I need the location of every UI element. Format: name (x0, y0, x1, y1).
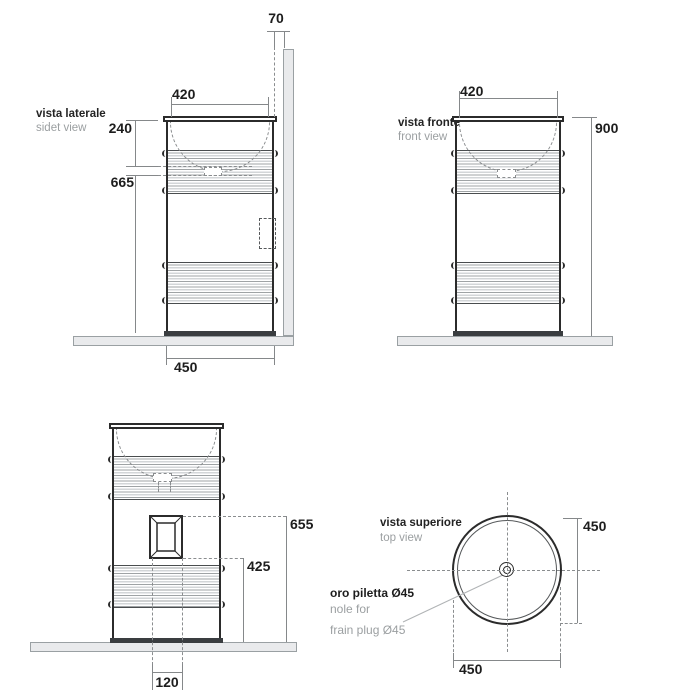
dim-tick (268, 97, 269, 117)
rolling-hoop (162, 187, 278, 194)
dim-line (135, 120, 136, 166)
dim-line (171, 104, 268, 105)
dim-tick (560, 653, 561, 668)
access-opening-frame (149, 515, 183, 559)
rolling-hoop (108, 493, 225, 500)
dim-label-basin-depth: 240 (100, 121, 132, 136)
rolling-hoop (451, 262, 565, 269)
reference-dashed-line (183, 558, 243, 559)
top-view-title: vista superiore (380, 516, 462, 530)
extension-line (166, 346, 167, 365)
barrel-top-rim (452, 116, 564, 122)
drain-hidden-line (170, 482, 171, 492)
dim-label-total-height: 900 (595, 121, 618, 136)
barrel-bottom-rim (164, 331, 276, 336)
dim-label-top-width: 420 (460, 84, 483, 99)
dim-line (591, 117, 592, 336)
dim-label-wall-gap: 70 (262, 11, 290, 26)
dim-line (135, 175, 136, 333)
barrel-bottom-rim (110, 638, 223, 643)
reference-dashed-line (158, 166, 252, 167)
dim-tick-dashed (560, 623, 582, 624)
floor (73, 336, 294, 346)
dim-tick (453, 653, 454, 668)
extension-dashed-line (152, 558, 153, 670)
barrel-top-rim (109, 423, 224, 429)
dim-tick (572, 117, 597, 118)
side-view-title: vista laterale (36, 107, 106, 121)
rolling-hoop (108, 456, 225, 463)
extension-dashed-line (560, 587, 561, 662)
drain-label-line2: nole for (330, 602, 370, 616)
rolling-hoop (451, 150, 565, 157)
technical-drawing: vista laterale sidet view 70 420 240 665 (0, 0, 700, 700)
wall (283, 49, 294, 336)
side-view-subtitle: sidet view (36, 121, 87, 135)
front-view-title: vista fronte (398, 116, 460, 130)
rolling-hoop (162, 297, 278, 304)
top-view: vista superiore top view oro piletta Ø45… (320, 480, 700, 700)
floor (397, 336, 613, 346)
side-view: vista laterale sidet view 70 420 240 665 (0, 0, 350, 390)
rolling-hoop (162, 262, 278, 269)
dim-label-width: 450 (459, 662, 482, 677)
dim-tick (274, 31, 275, 47)
access-opening-hidden (259, 218, 276, 249)
drain-label-line3: frain plug Ø45 (330, 623, 405, 637)
reference-dashed-line (158, 175, 252, 176)
dim-tick (557, 91, 558, 118)
dim-label-opening-bottom: 425 (247, 559, 270, 574)
centerline-vertical (507, 492, 508, 652)
barrel-bottom-rim (453, 331, 563, 336)
dim-line (152, 672, 182, 673)
drain-hidden-outline (153, 473, 172, 482)
drain-hidden-outline (497, 169, 516, 178)
rolling-hoop (108, 601, 225, 608)
dim-label-opening-width: 120 (151, 675, 183, 690)
rolling-hoop (451, 187, 565, 194)
top-view-subtitle: top view (380, 531, 422, 545)
dim-line (577, 518, 578, 623)
extension-dashed-line (182, 558, 183, 670)
dim-tick (284, 31, 285, 48)
dim-label-basin-height: 665 (102, 175, 134, 190)
dim-label-opening-top: 655 (290, 517, 313, 532)
front-view-subtitle: front view (398, 130, 447, 144)
drain-leader-line (402, 572, 506, 624)
dim-tick (126, 166, 158, 167)
reference-dashed-line (183, 516, 286, 517)
rolling-hoop (451, 297, 565, 304)
extension-line (274, 346, 275, 365)
dim-line (267, 31, 290, 32)
front-view: vista fronte front view 420 900 (350, 0, 700, 390)
floor (30, 642, 297, 652)
extension-dashed-line (274, 47, 275, 117)
dim-label-base-width: 450 (174, 360, 197, 375)
rolling-hoop (162, 150, 278, 157)
dim-line (286, 516, 287, 642)
barrel-top-rim (163, 116, 277, 122)
dim-line (243, 558, 244, 642)
dim-tick (563, 518, 582, 519)
centerline-horizontal (407, 570, 600, 571)
dim-label-depth: 450 (583, 519, 606, 534)
dim-label-top-width: 420 (172, 87, 195, 102)
drain-hidden-line (158, 482, 159, 492)
rear-view: 655 425 120 (0, 390, 350, 700)
rolling-hoop (108, 565, 225, 572)
